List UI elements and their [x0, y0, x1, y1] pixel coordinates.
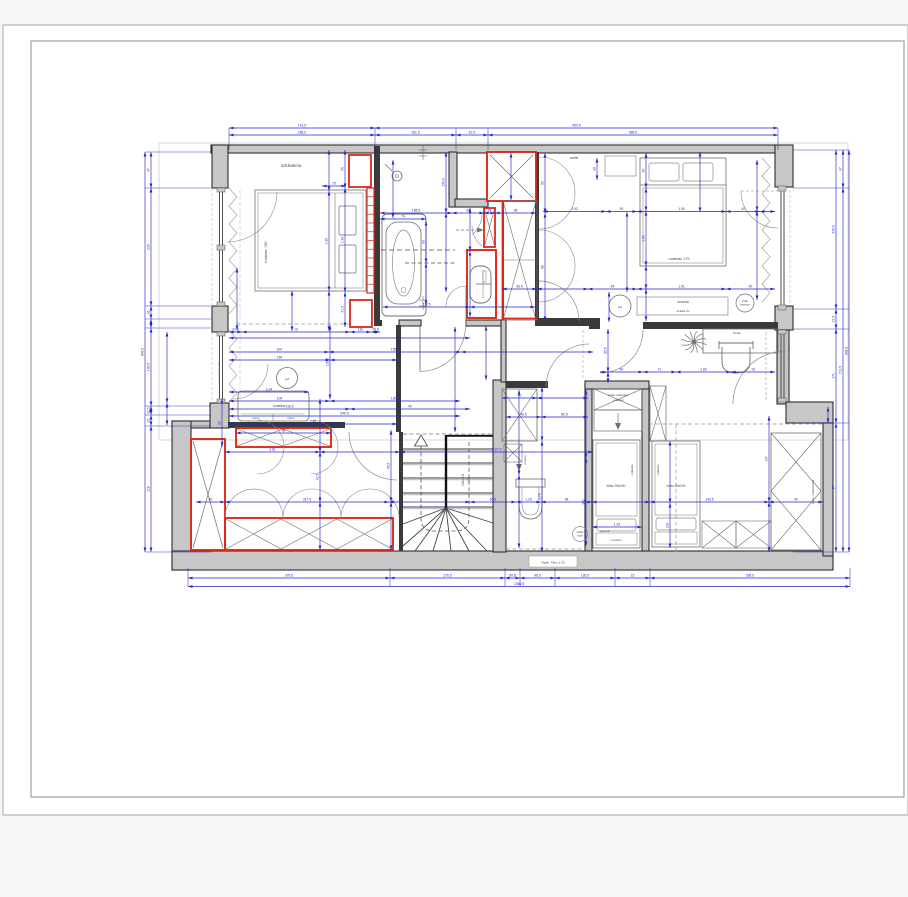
- svg-text:96.5: 96.5: [534, 574, 541, 578]
- svg-text:materac 190: materac 190: [264, 241, 268, 262]
- svg-text:181.5: 181.5: [411, 131, 419, 135]
- svg-text:155.5: 155.5: [391, 348, 399, 352]
- svg-text:210: 210: [666, 523, 670, 529]
- svg-text:1.26: 1.26: [614, 523, 621, 527]
- svg-text:90: 90: [422, 240, 426, 244]
- svg-text:47: 47: [839, 167, 843, 171]
- svg-text:z wkładem: z wkładem: [631, 464, 634, 475]
- svg-text:puf: puf: [285, 377, 289, 381]
- svg-text:713.5: 713.5: [839, 366, 843, 374]
- svg-text:z wkładem: z wkładem: [657, 464, 660, 475]
- svg-text:komoda: komoda: [677, 300, 689, 304]
- svg-text:łóżko 90x200: łóżko 90x200: [667, 484, 686, 488]
- svg-text:1127.5: 1127.5: [492, 448, 502, 452]
- svg-text:pralnia: pralnia: [523, 455, 527, 464]
- svg-text:40: 40: [741, 207, 745, 211]
- svg-text:+ pawlacz: + pawlacz: [612, 398, 624, 402]
- svg-text:19: 19: [294, 328, 298, 332]
- svg-text:305.5: 305.5: [746, 574, 754, 578]
- svg-text:18: 18: [751, 368, 755, 372]
- svg-text:Pgłęb. Pano 2.20: Pgłęb. Pano 2.20: [541, 561, 564, 565]
- svg-text:147: 147: [765, 456, 769, 462]
- svg-text:hp=210 cm h=220: hp=210 cm h=220: [217, 361, 221, 382]
- svg-text:185.5: 185.5: [412, 209, 420, 213]
- svg-text:29: 29: [467, 478, 471, 482]
- svg-text:80.5: 80.5: [561, 413, 568, 417]
- svg-text:143.5: 143.5: [705, 498, 713, 502]
- svg-text:kawowy: kawowy: [740, 303, 750, 307]
- svg-text:94: 94: [611, 285, 615, 289]
- svg-text:60: 60: [218, 421, 222, 425]
- svg-text:47: 47: [147, 168, 151, 172]
- svg-text:230.5: 230.5: [832, 225, 836, 233]
- svg-text:1.90: 1.90: [642, 235, 646, 242]
- svg-text:1.90: 1.90: [341, 237, 345, 244]
- svg-text:32.5: 32.5: [147, 407, 151, 414]
- svg-text:40: 40: [794, 498, 798, 502]
- svg-text:40: 40: [209, 498, 213, 502]
- svg-text:90: 90: [620, 368, 624, 372]
- svg-text:845.5: 845.5: [141, 348, 145, 356]
- svg-text:szafka nadstawka: szafka nadstawka: [608, 393, 629, 397]
- svg-text:549.5: 549.5: [340, 412, 348, 416]
- svg-text:40.5: 40.5: [520, 413, 527, 417]
- svg-text:41.5: 41.5: [341, 306, 345, 313]
- svg-text:268.5: 268.5: [298, 131, 306, 135]
- svg-text:16: 16: [147, 311, 151, 315]
- svg-text:28: 28: [488, 209, 492, 213]
- svg-text:sztukateria: sztukateria: [281, 163, 302, 168]
- svg-text:55: 55: [541, 181, 545, 185]
- svg-text:łóżko 90x200: łóżko 90x200: [607, 484, 626, 488]
- svg-text:90: 90: [620, 207, 624, 211]
- svg-text:40: 40: [642, 169, 646, 173]
- svg-text:16x18.8: 16x18.8: [461, 474, 465, 486]
- svg-text:96.5: 96.5: [516, 285, 523, 289]
- svg-text:130.5: 130.5: [391, 397, 399, 401]
- svg-text:61.5: 61.5: [469, 131, 476, 135]
- svg-text:10: 10: [147, 419, 151, 423]
- svg-text:90: 90: [749, 285, 753, 289]
- svg-text:75: 75: [332, 182, 336, 186]
- svg-text:21.5: 21.5: [232, 328, 239, 332]
- svg-text:50.5: 50.5: [490, 498, 497, 502]
- svg-text:ściek: ściek: [577, 535, 583, 538]
- svg-text:379.5: 379.5: [285, 574, 293, 578]
- svg-text:141.5: 141.5: [298, 124, 306, 128]
- svg-text:szafka rtv: szafka rtv: [677, 309, 690, 313]
- svg-text:1.90: 1.90: [325, 238, 329, 245]
- svg-text:276.5: 276.5: [443, 574, 451, 578]
- svg-text:948.5: 948.5: [845, 347, 849, 355]
- svg-text:104: 104: [276, 348, 282, 352]
- svg-text:lustro: lustro: [287, 416, 295, 420]
- svg-text:50.5: 50.5: [509, 574, 516, 578]
- svg-text:1.16: 1.16: [525, 498, 532, 502]
- svg-text:15: 15: [631, 574, 635, 578]
- svg-text:hp. 0 Pam 220: hp. 0 Pam 220: [787, 345, 791, 364]
- svg-text:140.5: 140.5: [147, 363, 151, 371]
- svg-text:stolik: stolik: [742, 299, 749, 303]
- svg-text:1.04: 1.04: [266, 388, 273, 392]
- svg-text:40: 40: [593, 167, 597, 171]
- svg-text:21.5: 21.5: [832, 316, 836, 323]
- svg-text:biurko: biurko: [733, 331, 742, 335]
- svg-text:materac 179: materac 179: [668, 257, 689, 261]
- svg-text:45: 45: [341, 167, 345, 171]
- svg-text:szafa + biblioteczka: szafa + biblioteczka: [811, 479, 815, 504]
- svg-text:98: 98: [514, 209, 518, 213]
- svg-text:27: 27: [832, 486, 836, 490]
- svg-text:181: 181: [358, 328, 364, 332]
- svg-text:45.5: 45.5: [387, 463, 391, 470]
- svg-text:104: 104: [277, 397, 283, 401]
- svg-text:302: 302: [582, 499, 586, 505]
- svg-text:szafki: szafki: [570, 156, 578, 160]
- svg-text:pojemnik: pojemnik: [600, 530, 610, 533]
- svg-text:589.5: 589.5: [629, 131, 637, 135]
- svg-text:317.5: 317.5: [303, 498, 311, 502]
- svg-text:71: 71: [658, 368, 662, 372]
- svg-text:559.5: 559.5: [572, 124, 580, 128]
- svg-text:lustro: lustro: [252, 416, 260, 420]
- svg-text:41.5: 41.5: [316, 474, 320, 481]
- svg-text:toaletka: toaletka: [273, 404, 285, 408]
- svg-text:2.78: 2.78: [538, 493, 542, 500]
- svg-text:1.91: 1.91: [678, 285, 685, 289]
- svg-text:126.5: 126.5: [581, 574, 589, 578]
- svg-text:98: 98: [282, 429, 286, 433]
- svg-text:171: 171: [832, 373, 836, 379]
- svg-text:puf: puf: [618, 305, 622, 309]
- svg-text:210.5: 210.5: [422, 303, 430, 307]
- svg-text:55.5: 55.5: [604, 347, 608, 354]
- svg-text:1.80: 1.80: [700, 368, 707, 372]
- svg-text:154: 154: [277, 356, 283, 360]
- svg-text:150.5: 150.5: [442, 178, 446, 186]
- svg-text:1.92: 1.92: [571, 207, 578, 211]
- svg-text:na pościel: na pościel: [611, 539, 622, 542]
- svg-text:98: 98: [565, 498, 569, 502]
- svg-text:318.5: 318.5: [285, 405, 293, 409]
- svg-text:1366.5: 1366.5: [514, 582, 524, 586]
- svg-text:74: 74: [401, 215, 405, 219]
- svg-text:230: 230: [147, 244, 151, 250]
- svg-text:118: 118: [147, 486, 151, 491]
- svg-text:1.90: 1.90: [678, 207, 685, 211]
- svg-text:45.5: 45.5: [372, 328, 379, 332]
- svg-text:5.49: 5.49: [310, 420, 317, 424]
- svg-text:40: 40: [408, 405, 412, 409]
- svg-text:3.81: 3.81: [269, 448, 276, 452]
- svg-text:98: 98: [541, 265, 545, 269]
